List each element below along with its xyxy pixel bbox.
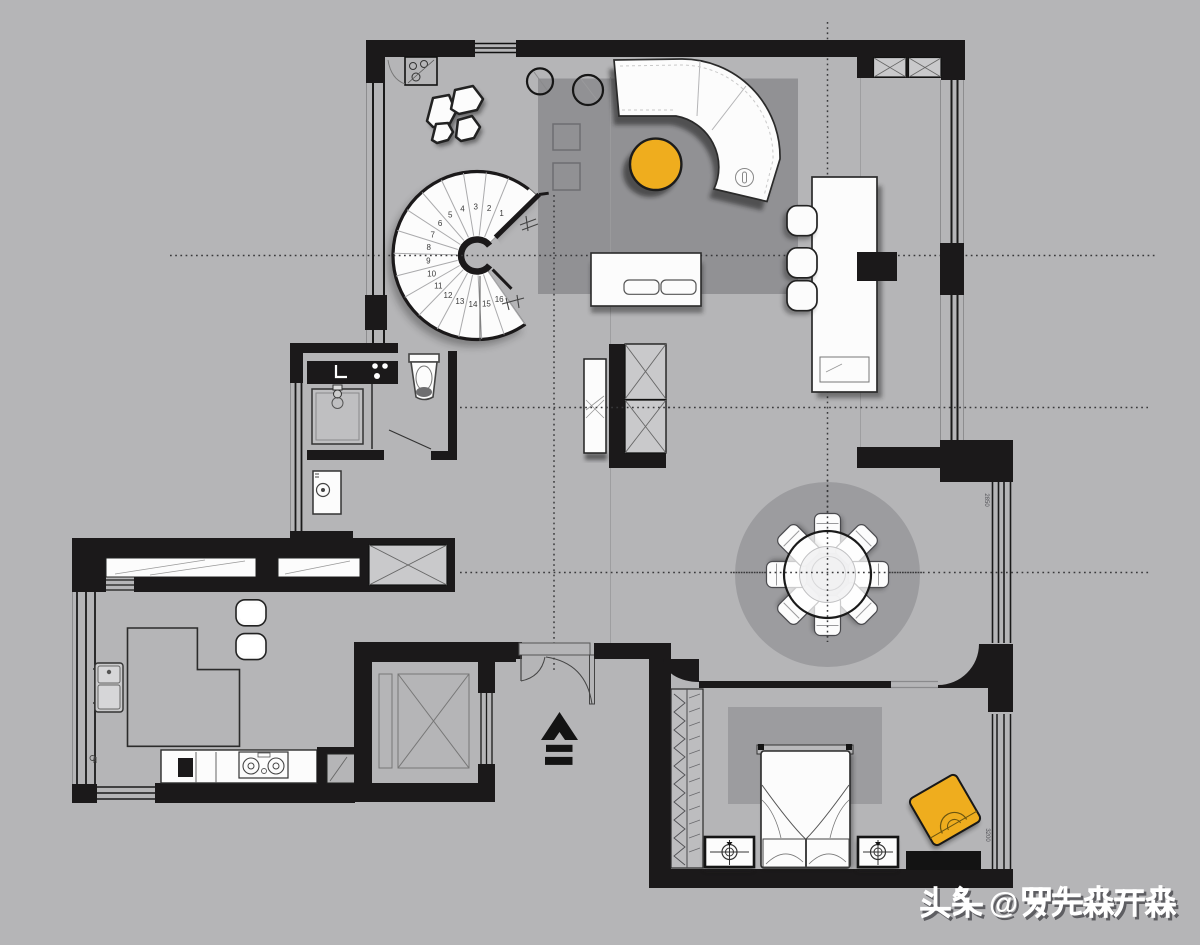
svg-text:1: 1	[499, 209, 504, 218]
svg-text:14: 14	[469, 300, 478, 309]
svg-text:2: 2	[487, 204, 492, 213]
svg-text:11: 11	[434, 281, 443, 290]
svg-text:8: 8	[426, 243, 431, 252]
svg-text:7: 7	[430, 230, 435, 239]
svg-text:2850: 2850	[983, 493, 989, 507]
svg-text:3: 3	[473, 202, 478, 211]
svg-text:6: 6	[438, 219, 443, 228]
svg-text:16: 16	[495, 295, 504, 304]
svg-text:4: 4	[460, 205, 465, 214]
svg-text:15: 15	[482, 299, 491, 308]
svg-text:@: @	[989, 887, 1018, 920]
svg-text:12: 12	[444, 291, 453, 300]
svg-text:13: 13	[455, 297, 464, 306]
svg-text:9: 9	[426, 257, 431, 266]
svg-text:5: 5	[448, 210, 453, 219]
svg-text:10: 10	[427, 270, 436, 279]
svg-text:3200: 3200	[984, 828, 990, 842]
